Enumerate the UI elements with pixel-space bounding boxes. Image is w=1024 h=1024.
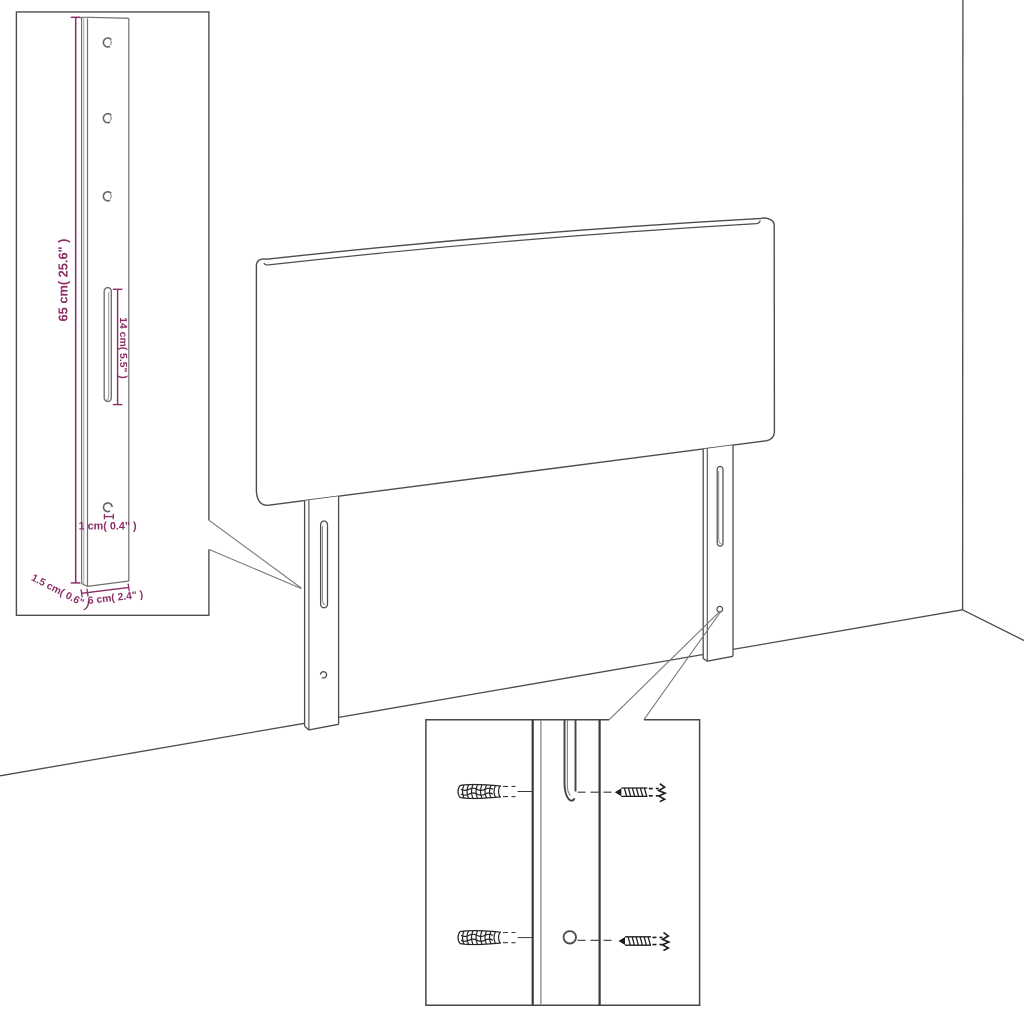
svg-text:65 cm( 25.6" ): 65 cm( 25.6" ) (55, 239, 70, 322)
svg-text:1 cm( 0.4" ): 1 cm( 0.4" ) (79, 520, 137, 532)
svg-text:14 cm( 5.5" ): 14 cm( 5.5" ) (117, 317, 128, 379)
svg-text:6 cm( 2.4" ): 6 cm( 2.4" ) (87, 590, 144, 607)
